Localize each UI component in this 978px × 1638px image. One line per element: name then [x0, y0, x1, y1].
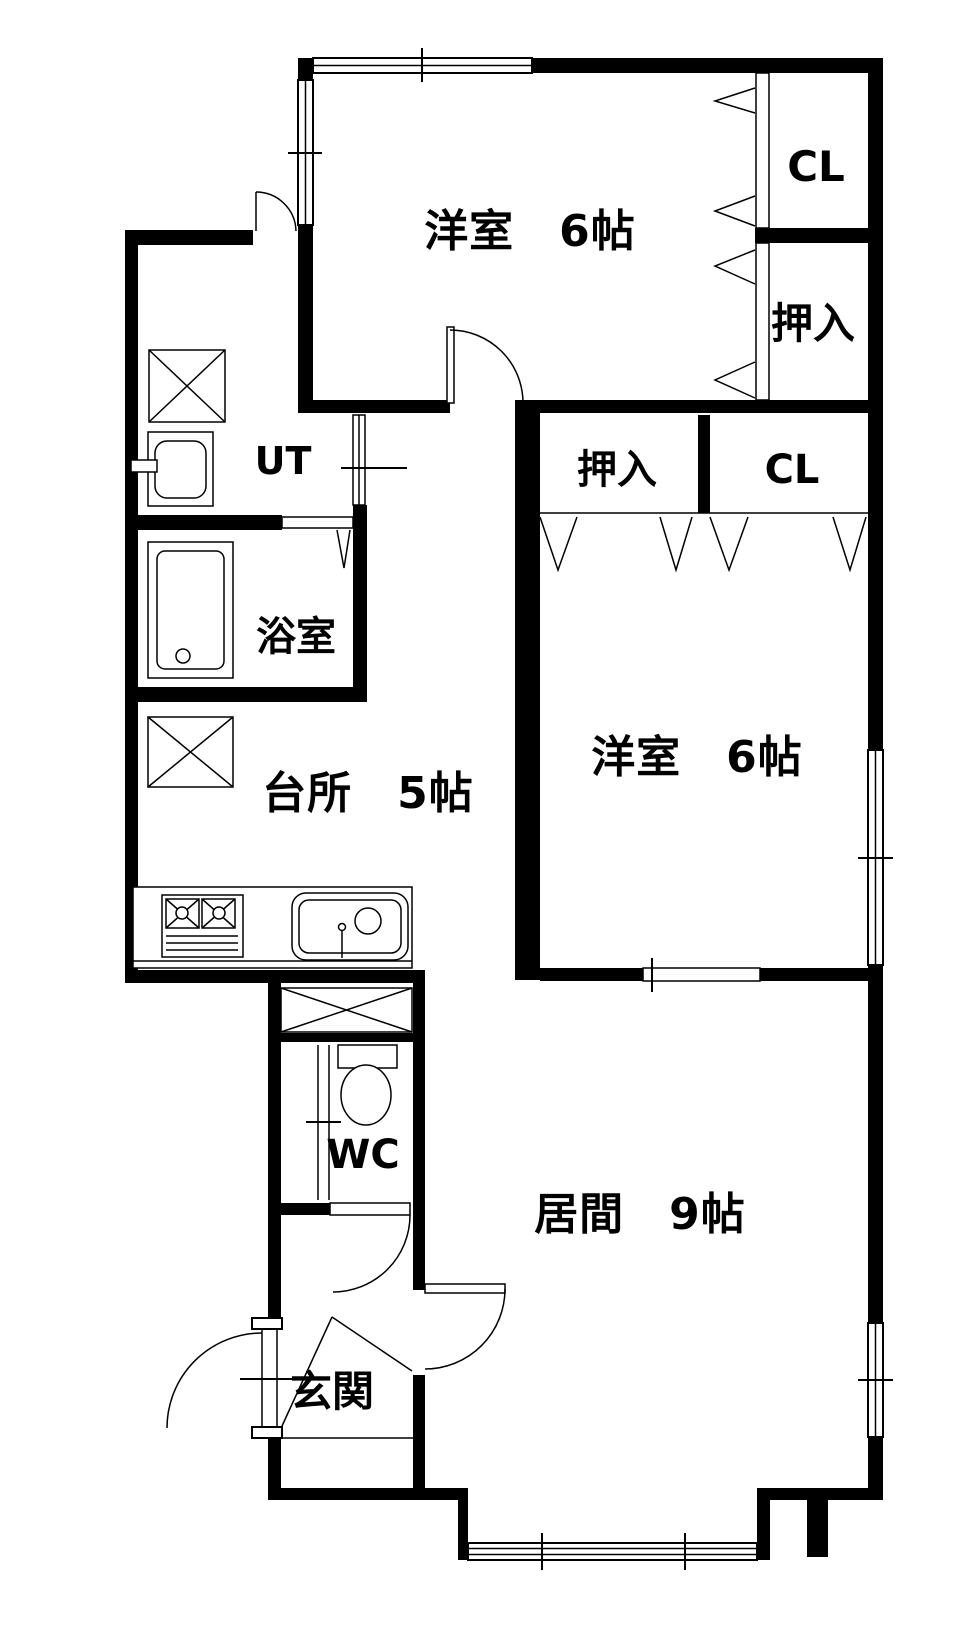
door-leaf: [447, 327, 454, 403]
folding-door-symbol: [715, 250, 755, 284]
wall-bath-south: [125, 687, 367, 702]
wall-cl-oshiire-divider-north: [755, 228, 868, 243]
door-bedroom-north: [447, 327, 523, 403]
folding-door-symbol: [715, 88, 755, 113]
wall-west: [125, 230, 138, 983]
wall-oshiire-cl-divider-mid: [698, 415, 710, 513]
folding-door-symbol: [715, 196, 755, 226]
folding-door-symbol: [540, 517, 577, 570]
tub-inner: [157, 551, 224, 669]
door-leaf: [425, 1284, 505, 1293]
bathtub-icon: [148, 542, 233, 678]
wall-genkan-south: [268, 1488, 458, 1500]
hall-storage-icon: [281, 988, 412, 1032]
closet-north-oshiire-track: [756, 243, 769, 400]
label-closet-north: CL: [787, 142, 845, 191]
kitchen-equipment-space-icon: [148, 717, 233, 787]
burner-right-ring: [213, 907, 225, 919]
door-swing-arc: [167, 1333, 262, 1428]
toilet-icon: [338, 1045, 397, 1125]
stove-icon: [162, 895, 243, 957]
basin-faucet: [131, 460, 157, 472]
wall-east-mid: [868, 965, 883, 1323]
wall-bedroom-mid-south-right: [760, 968, 868, 981]
wall-bedroom-north-west: [298, 225, 313, 413]
door-swing-arc: [256, 192, 296, 231]
wall-bay-east: [757, 1488, 770, 1560]
closet-north-cl-track: [756, 73, 769, 228]
wall-wc-block-east-upper: [413, 983, 425, 1290]
window-band: [468, 1543, 757, 1560]
door-band: [282, 517, 353, 528]
wall-north-top: [532, 58, 883, 73]
wall-bath-ne-corner: [353, 505, 367, 530]
washer-pan-icon: [149, 350, 225, 422]
folding-door-symbol: [337, 530, 350, 568]
wall-exterior-stub: [807, 1500, 828, 1557]
label-bathroom: 浴室: [256, 614, 336, 660]
label-toilet: WC: [326, 1132, 399, 1178]
wall-utility-north: [125, 230, 253, 245]
door-genkan-living: [425, 1284, 505, 1369]
window-bedroom-north-top: [313, 48, 532, 82]
basin-bowl: [155, 441, 206, 498]
wall-genkan-west-lower: [268, 1438, 281, 1488]
wall-genkan-east-lower: [413, 1375, 425, 1488]
floor-plan-drawing: 洋室 6帖 CL 押入 押入 CL UT 浴室 洋室 6帖 台所 5帖 WC 居…: [0, 0, 978, 1638]
label-living: 居間 9帖: [534, 1189, 746, 1240]
kitchen-counter: [133, 887, 412, 968]
folding-door-symbol: [833, 517, 866, 570]
wall-kitchen-south: [133, 970, 425, 983]
label-kitchen: 台所 5帖: [262, 768, 474, 819]
wall-storage-south: [280, 1033, 413, 1042]
folding-door-symbol: [710, 517, 748, 570]
door-utility-kitchen: [341, 415, 407, 505]
door-entrance: [167, 1318, 294, 1438]
label-oshiire-mid: 押入: [577, 447, 657, 493]
wall-spine: [515, 400, 540, 980]
label-utility: UT: [255, 439, 312, 483]
label-closet-mid: CL: [765, 447, 820, 493]
window-living-east: [858, 1323, 893, 1437]
sink-icon: [292, 893, 408, 960]
wall-wc-block-west: [268, 983, 281, 1318]
toilet-bowl: [341, 1065, 391, 1125]
door-band: [643, 968, 760, 981]
folding-door-symbol: [660, 517, 692, 570]
label-bedroom-north: 洋室 6帖: [424, 206, 636, 257]
door-bedroom-mid-sliding: [643, 958, 760, 992]
washbasin-icon: [131, 432, 213, 506]
door-bathroom-folding: [282, 517, 353, 568]
folding-door-symbol: [715, 362, 755, 398]
burner-left-ring: [176, 907, 188, 919]
wall-nw-corner: [298, 58, 313, 80]
label-oshiire-north: 押入: [771, 299, 855, 348]
wall-bedroom-north-south-right: [525, 400, 868, 413]
window-bedroom-mid-east: [858, 750, 893, 965]
door-swing-arc: [450, 330, 523, 403]
wall-bedroom-mid-south-left: [540, 968, 643, 981]
label-bedroom-mid: 洋室 6帖: [591, 732, 803, 783]
sink-drainer: [355, 908, 381, 934]
wall-utility-bath-divider: [138, 515, 282, 530]
door-jamb-top: [252, 1318, 282, 1329]
sink-faucet-head: [339, 924, 346, 931]
door-jamb-bottom: [252, 1427, 282, 1438]
floor-plan: 洋室 6帖 CL 押入 押入 CL UT 浴室 洋室 6帖 台所 5帖 WC 居…: [0, 0, 978, 1638]
wall-bay-west: [458, 1488, 468, 1560]
tub-drain: [176, 649, 190, 663]
door-utility-rear: [256, 192, 296, 231]
wall-wc-south: [268, 1203, 330, 1215]
door-swing-arc: [425, 1289, 505, 1369]
wall-bedroom-north-south-left: [298, 400, 450, 413]
wall-east-upper: [868, 58, 883, 750]
wall-bath-east: [353, 530, 367, 702]
door-swing-arc: [333, 1215, 410, 1292]
label-entrance: 玄関: [290, 1367, 374, 1416]
door-band: [330, 1203, 410, 1215]
sink-basin: [299, 900, 401, 953]
window-living-bay: [468, 1533, 757, 1570]
wall-living-south: [770, 1488, 883, 1500]
window-bedroom-north-west: [288, 80, 322, 225]
door-wc: [330, 1203, 410, 1292]
